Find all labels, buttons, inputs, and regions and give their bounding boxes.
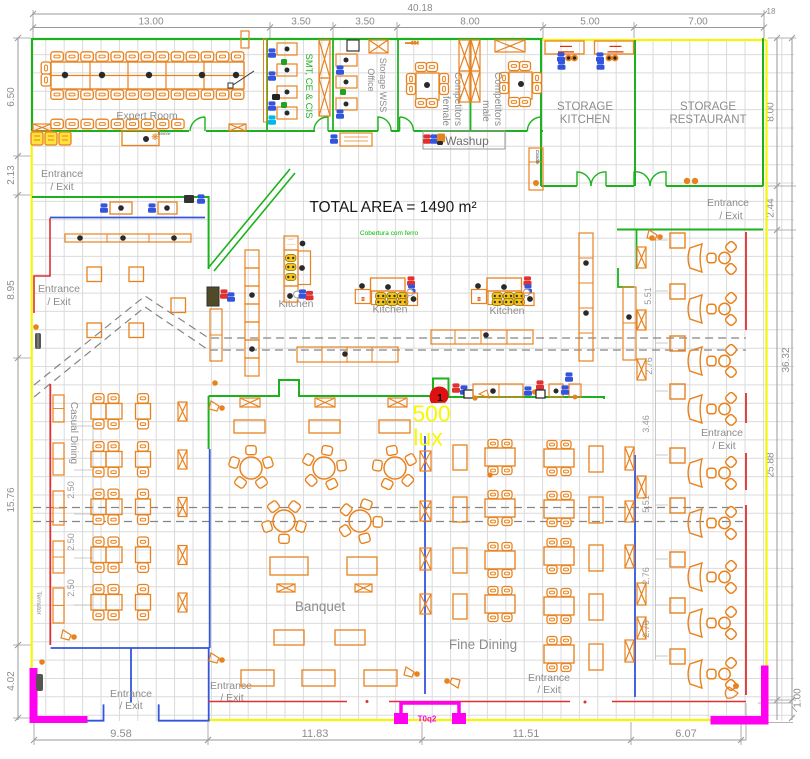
svg-text:Entrance: Entrance	[701, 427, 743, 439]
svg-text:3.50: 3.50	[291, 17, 311, 28]
svg-text:Seinre: Seinre	[157, 131, 171, 136]
svg-text:STORAGE: STORAGE	[680, 101, 736, 113]
svg-text:Ternstor: Ternstor	[35, 591, 42, 615]
svg-text:Banquet: Banquet	[295, 599, 346, 614]
svg-text:7.00: 7.00	[688, 17, 708, 28]
svg-text:40.18: 40.18	[407, 3, 432, 14]
svg-text:▬▬▬: ▬▬▬	[610, 43, 622, 48]
svg-text:Casual Dining: Casual Dining	[68, 402, 79, 464]
svg-text:Storage WSS: Storage WSS	[378, 58, 388, 113]
svg-text:▬▬▬: ▬▬▬	[560, 43, 572, 48]
svg-text:▮▮: ▮▮	[477, 297, 482, 301]
svg-text:36.32: 36.32	[781, 347, 792, 372]
svg-text:Candle: Candle	[535, 150, 540, 165]
svg-text:11.51: 11.51	[513, 728, 540, 740]
svg-text:Kitchen: Kitchen	[489, 305, 524, 317]
svg-text:lux: lux	[413, 425, 443, 451]
svg-text:Competitors: Competitors	[492, 72, 503, 126]
svg-text:/ Exit: / Exit	[719, 210, 742, 222]
svg-text:SMT, CE & CIS: SMT, CE & CIS	[303, 54, 314, 119]
svg-text:2.13: 2.13	[6, 165, 17, 185]
svg-text:2.76: 2.76	[641, 567, 651, 585]
svg-text:Entrance: Entrance	[707, 197, 749, 209]
svg-text:T0q2: T0q2	[418, 715, 437, 724]
svg-text:▬▬▬▬: ▬▬▬▬	[608, 49, 624, 54]
svg-text:Entrance: Entrance	[528, 672, 570, 684]
svg-text:Cobertura com ferro: Cobertura com ferro	[360, 230, 419, 237]
svg-text:13.00: 13.00	[138, 17, 163, 28]
svg-text:▮▮: ▮▮	[361, 297, 366, 301]
svg-text:female: female	[440, 96, 451, 126]
svg-text:8.00: 8.00	[460, 17, 480, 28]
svg-text:15.76: 15.76	[6, 487, 17, 512]
svg-text:Competitors: Competitors	[452, 72, 463, 126]
svg-text:/ Exit: / Exit	[537, 684, 560, 696]
svg-text:Office: Office	[366, 68, 376, 91]
svg-text:Entrance: Entrance	[41, 168, 83, 180]
svg-text:8.95: 8.95	[6, 280, 17, 300]
svg-text:/ Exit: / Exit	[220, 692, 243, 704]
svg-text:18: 18	[767, 7, 776, 16]
svg-text:male: male	[480, 100, 491, 122]
svg-text:6.50: 6.50	[6, 87, 17, 107]
svg-text:▮▮▮: ▮▮▮	[411, 40, 420, 46]
svg-text:2.50: 2.50	[66, 533, 76, 551]
svg-text:2.50: 2.50	[66, 481, 76, 499]
svg-text:6.07: 6.07	[675, 728, 696, 740]
svg-text:1.00: 1.00	[793, 688, 804, 708]
svg-text:11.83: 11.83	[302, 728, 329, 740]
svg-text:RESTAURANT: RESTAURANT	[669, 114, 746, 126]
svg-text:3.46: 3.46	[641, 415, 651, 433]
svg-text:2.50: 2.50	[66, 579, 76, 597]
svg-text:Entrance: Entrance	[110, 688, 152, 700]
svg-text:/ Exit: / Exit	[119, 700, 142, 712]
svg-text:9.58: 9.58	[110, 728, 131, 740]
svg-text:4.02: 4.02	[6, 671, 17, 691]
svg-text:1: 1	[437, 393, 443, 404]
svg-text:500: 500	[412, 401, 450, 427]
svg-text:Entrance: Entrance	[38, 283, 80, 295]
svg-text:/ Exit: / Exit	[712, 440, 735, 452]
svg-text:5.51: 5.51	[643, 287, 653, 305]
svg-text:Fine Dining: Fine Dining	[449, 637, 517, 652]
svg-text:3.50: 3.50	[355, 17, 375, 28]
svg-text:/ Exit: / Exit	[50, 181, 73, 193]
svg-text:TOTAL AREA = 1490 m²: TOTAL AREA = 1490 m²	[309, 199, 476, 216]
svg-text:5.00: 5.00	[580, 17, 600, 28]
svg-text:KITCHEN: KITCHEN	[560, 114, 610, 126]
svg-text:/ Exit: / Exit	[47, 296, 70, 308]
svg-text:Washup: Washup	[445, 134, 489, 148]
svg-text:───: ───	[286, 242, 296, 247]
svg-text:STORAGE: STORAGE	[557, 101, 613, 113]
svg-text:Expert Room: Expert Room	[116, 110, 178, 122]
